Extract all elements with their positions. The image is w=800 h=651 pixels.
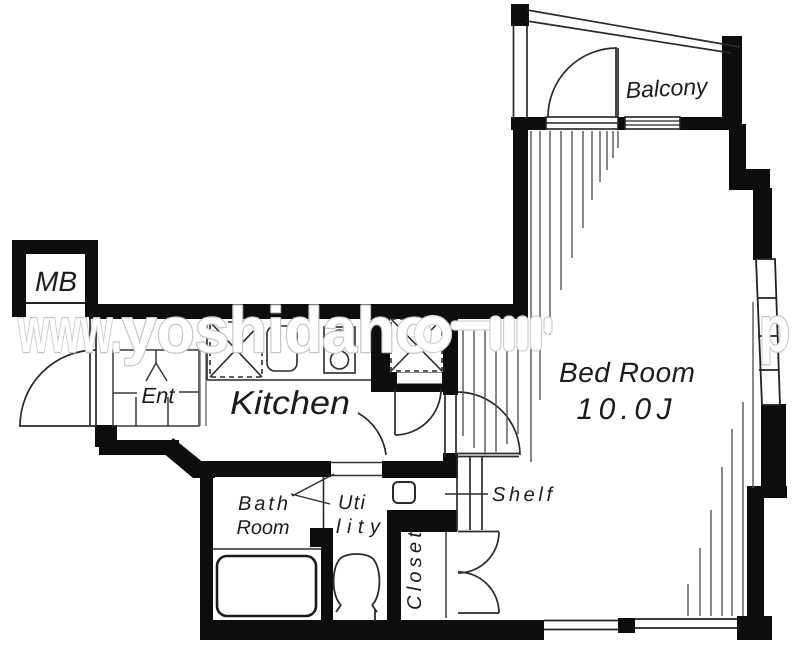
svg-text:Room: Room — [237, 517, 290, 539]
svg-text:p: p — [759, 293, 790, 365]
svg-text:Bed Room: Bed Room — [559, 357, 695, 388]
svg-text:Uti: Uti — [338, 492, 366, 514]
svg-text:Ent: Ent — [141, 383, 175, 408]
svg-text:Balcony: Balcony — [625, 73, 710, 103]
svg-text:MB: MB — [35, 266, 77, 297]
svg-text:Kitchen: Kitchen — [230, 384, 350, 421]
svg-text:Bath: Bath — [238, 493, 288, 515]
svg-text:10.0J: 10.0J — [577, 393, 673, 426]
svg-text:www.: www. — [17, 294, 122, 366]
svg-text:yoshidaho: yoshidaho — [122, 294, 433, 366]
